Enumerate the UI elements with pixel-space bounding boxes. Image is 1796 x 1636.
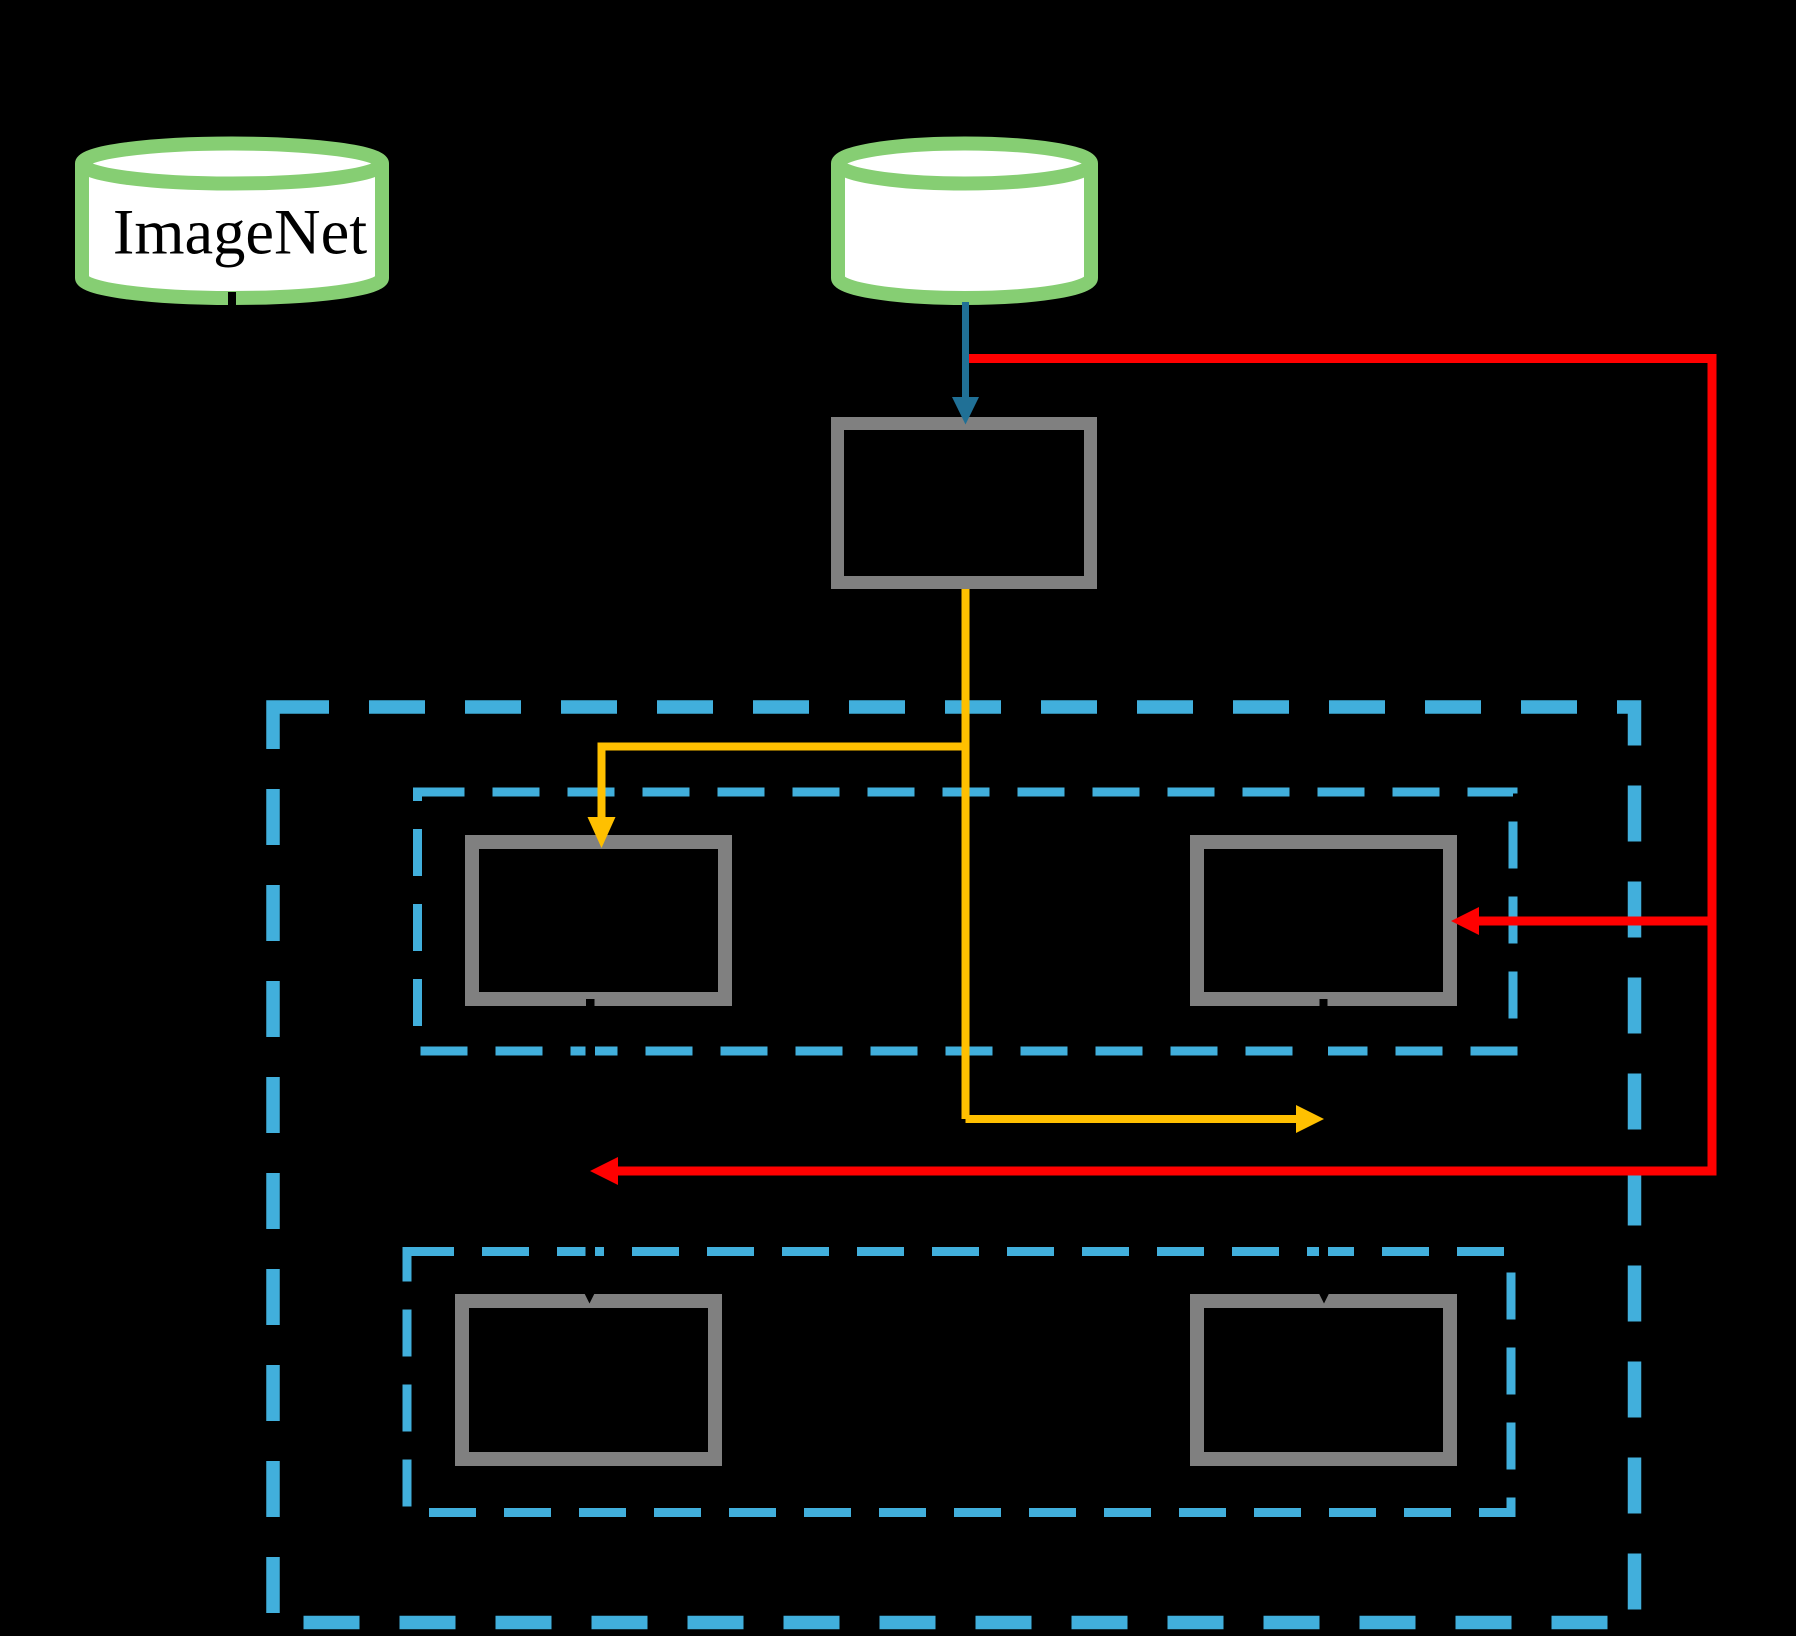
svg-text:ImageNet: ImageNet [113,197,367,268]
